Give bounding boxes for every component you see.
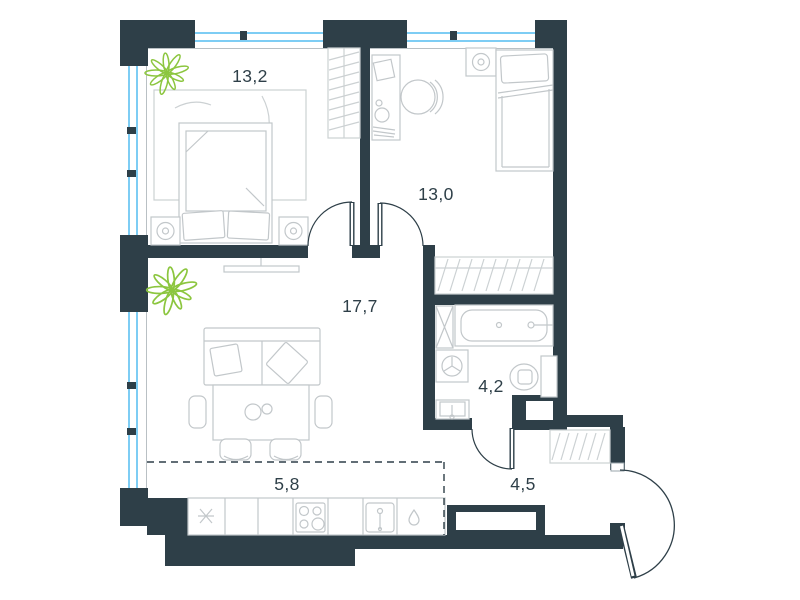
door-bedroom-1	[308, 202, 352, 246]
label-bathroom: 4,2	[478, 376, 504, 396]
plant-icon	[147, 267, 198, 316]
wardrobe-icon	[328, 48, 360, 138]
desk-icon	[372, 55, 400, 140]
nightstand-lamp-icon	[151, 217, 180, 245]
sofa-icon	[204, 328, 320, 385]
coat-closet-icon	[550, 430, 610, 463]
floor-plan-canvas: 13,2 13,0 17,7 5,8 4,2 4,5	[0, 0, 800, 600]
bedroom-2-furniture	[372, 48, 553, 294]
window-left-2	[128, 312, 130, 488]
entrance-door	[611, 463, 674, 578]
shaft-box	[447, 505, 545, 537]
label-bedroom-2: 13,0	[418, 184, 454, 204]
door-bedroom-2	[380, 203, 423, 246]
desk-chair-icon	[401, 80, 443, 114]
bathroom-sink-icon	[436, 400, 469, 419]
window-top-1	[195, 32, 323, 34]
washing-machine-icon	[436, 350, 468, 382]
tv-console-icon	[224, 258, 299, 272]
duct-shaft-icon	[436, 306, 453, 348]
living-room-furniture	[189, 258, 332, 460]
bathtub-icon	[455, 305, 553, 346]
label-living-room: 17,7	[342, 296, 378, 316]
built-in-wardrobe-icon	[435, 257, 553, 294]
single-bed-icon	[496, 50, 553, 171]
bathroom-shaft-notch	[526, 401, 553, 420]
kitchen-counter	[188, 498, 445, 535]
nightstand-lamp-icon	[279, 217, 308, 245]
window-top-2	[407, 32, 535, 34]
nightstand-lamp-icon	[466, 48, 496, 76]
toilet-icon	[510, 356, 557, 397]
plant-icon	[145, 53, 189, 95]
window-left-1	[128, 65, 130, 235]
door-bathroom	[472, 428, 512, 469]
double-bed-icon	[179, 123, 272, 243]
label-hallway: 4,5	[510, 474, 536, 494]
label-kitchen: 5,8	[274, 474, 300, 494]
floor-plan: 13,2 13,0 17,7 5,8 4,2 4,5	[0, 0, 800, 600]
dining-table-icon	[213, 385, 309, 440]
label-bedroom-1: 13,2	[232, 66, 268, 86]
